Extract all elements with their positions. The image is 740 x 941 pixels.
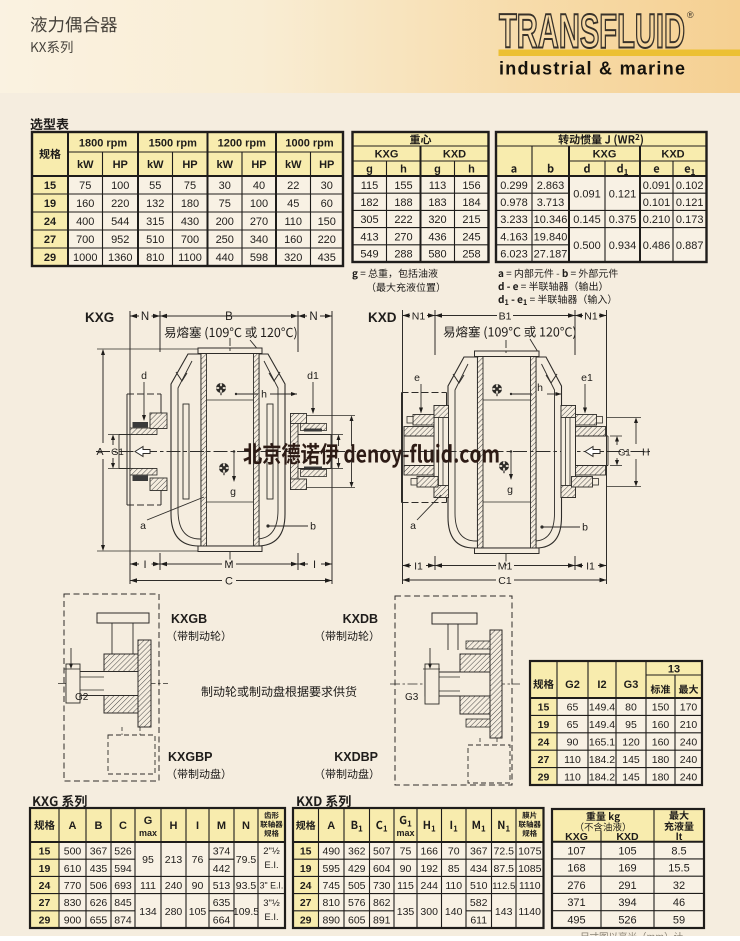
svg-text:H: H <box>642 447 650 459</box>
svg-text:kW: kW <box>77 159 94 171</box>
svg-text:188: 188 <box>394 197 412 209</box>
svg-text:100: 100 <box>111 180 129 192</box>
svg-text:0.102: 0.102 <box>676 180 704 192</box>
svg-text:0.121: 0.121 <box>676 197 704 209</box>
svg-text:394: 394 <box>618 897 636 909</box>
svg-text:19: 19 <box>538 719 550 731</box>
svg-text:15: 15 <box>300 846 312 858</box>
svg-text:90: 90 <box>192 880 204 892</box>
svg-text:65: 65 <box>567 702 579 714</box>
svg-text:434: 434 <box>470 863 488 875</box>
svg-text:h: h <box>537 382 543 394</box>
svg-text:max: max <box>396 828 414 838</box>
svg-text:745: 745 <box>322 880 340 892</box>
svg-text:1100: 1100 <box>178 252 202 264</box>
svg-text:a: a <box>410 520 416 532</box>
svg-text:N: N <box>309 311 317 323</box>
svg-text:113: 113 <box>429 180 447 192</box>
svg-text:160: 160 <box>76 198 94 210</box>
svg-text:276: 276 <box>567 880 585 892</box>
svg-text:h: h <box>261 389 267 401</box>
svg-text:145: 145 <box>622 771 640 783</box>
svg-text:h: h <box>468 164 475 176</box>
svg-text:24: 24 <box>39 880 51 892</box>
svg-text:693: 693 <box>114 880 132 892</box>
svg-text:810: 810 <box>322 897 340 909</box>
svg-text:952: 952 <box>111 234 129 246</box>
svg-text:G1: G1 <box>111 447 124 458</box>
svg-text:291: 291 <box>618 880 636 892</box>
svg-text:183: 183 <box>428 197 446 209</box>
svg-text:507: 507 <box>373 846 391 858</box>
svg-text:891: 891 <box>373 914 391 926</box>
svg-text:76: 76 <box>192 854 204 866</box>
svg-text:182: 182 <box>360 197 378 209</box>
svg-text:G1: G1 <box>618 448 631 459</box>
svg-text:I: I <box>143 559 146 571</box>
svg-text:240: 240 <box>680 737 698 749</box>
svg-text:g: g <box>507 484 513 496</box>
svg-text:810: 810 <box>146 252 164 264</box>
svg-text:1140: 1140 <box>518 906 541 918</box>
svg-text:KXD: KXD <box>443 149 466 161</box>
svg-text:30: 30 <box>219 180 231 192</box>
svg-text:d: d <box>141 370 147 382</box>
svg-text:e: e <box>414 372 420 384</box>
svg-text:g: g <box>366 164 373 176</box>
svg-text:M: M <box>217 820 226 832</box>
svg-text:60: 60 <box>321 198 333 210</box>
svg-text:90: 90 <box>400 863 412 875</box>
svg-text:2"½: 2"½ <box>263 846 280 857</box>
svg-text:75: 75 <box>400 846 412 858</box>
svg-text:30: 30 <box>321 180 333 192</box>
svg-text:149.4: 149.4 <box>589 702 615 714</box>
svg-text:I1: I1 <box>414 561 423 573</box>
svg-text:180: 180 <box>652 754 670 766</box>
svg-text:160: 160 <box>284 234 302 246</box>
svg-text:1800 rpm: 1800 rpm <box>79 138 128 150</box>
svg-text:240: 240 <box>165 880 183 892</box>
svg-text:80: 80 <box>625 702 637 714</box>
svg-text:430: 430 <box>181 216 199 228</box>
svg-text:d1: d1 <box>307 370 319 382</box>
svg-text:h: h <box>400 164 407 176</box>
svg-text:109.5: 109.5 <box>233 906 259 918</box>
svg-text:A: A <box>96 446 103 458</box>
svg-text:0.887: 0.887 <box>676 240 704 252</box>
svg-text:HP: HP <box>113 159 128 171</box>
svg-text:605: 605 <box>348 914 366 926</box>
svg-text:305: 305 <box>360 214 378 226</box>
svg-text:KXD: KXD <box>616 831 639 843</box>
svg-text:700: 700 <box>181 234 199 246</box>
svg-text:110: 110 <box>564 771 581 783</box>
svg-text:I: I <box>313 559 316 571</box>
svg-text:1085: 1085 <box>518 863 542 875</box>
svg-text:22: 22 <box>287 180 299 192</box>
svg-text:M: M <box>224 559 233 571</box>
svg-text:B: B <box>95 820 103 832</box>
svg-text:15: 15 <box>44 180 56 192</box>
svg-text:700: 700 <box>76 234 94 246</box>
svg-text:1360: 1360 <box>108 252 132 264</box>
svg-text:250: 250 <box>216 234 234 246</box>
svg-text:C1: C1 <box>498 575 512 587</box>
svg-text:862: 862 <box>373 897 391 909</box>
svg-text:105: 105 <box>618 845 636 857</box>
svg-text:KXG: KXG <box>565 831 588 843</box>
svg-text:0.210: 0.210 <box>643 214 671 226</box>
svg-text:582: 582 <box>470 897 488 909</box>
svg-text:580: 580 <box>428 249 446 261</box>
svg-text:I: I <box>196 820 199 832</box>
svg-text:215: 215 <box>462 214 480 226</box>
svg-text:95: 95 <box>625 719 637 731</box>
svg-text:184.2: 184.2 <box>589 754 615 766</box>
svg-text:0.375: 0.375 <box>609 214 637 226</box>
svg-text:315: 315 <box>146 216 164 228</box>
svg-text:93.5: 93.5 <box>236 880 257 892</box>
svg-text:165.1: 165.1 <box>589 737 615 749</box>
svg-text:180: 180 <box>181 198 199 210</box>
svg-text:29: 29 <box>39 914 51 926</box>
svg-text:10.346: 10.346 <box>534 214 568 226</box>
svg-text:15.5: 15.5 <box>668 863 689 875</box>
svg-text:0.101: 0.101 <box>643 197 671 209</box>
svg-text:610: 610 <box>64 863 82 875</box>
svg-text:168: 168 <box>567 863 585 875</box>
svg-text:75: 75 <box>184 180 196 192</box>
svg-text:100: 100 <box>250 198 268 210</box>
svg-text:150: 150 <box>318 216 336 228</box>
svg-text:160: 160 <box>652 719 670 731</box>
svg-text:435: 435 <box>318 252 336 264</box>
svg-text:1500 rpm: 1500 rpm <box>149 138 198 150</box>
svg-text:374: 374 <box>213 846 231 858</box>
svg-text:KXDB: KXDB <box>343 612 378 626</box>
svg-text:N: N <box>141 311 149 323</box>
svg-text:598: 598 <box>250 252 268 264</box>
svg-text:32: 32 <box>673 880 685 892</box>
svg-text:180: 180 <box>652 771 670 783</box>
svg-text:135: 135 <box>397 906 415 918</box>
svg-text:industrial & marine: industrial & marine <box>499 59 685 79</box>
svg-text:59: 59 <box>673 914 685 926</box>
svg-text:400: 400 <box>76 216 94 228</box>
svg-text:b: b <box>582 522 588 534</box>
svg-text:kW: kW <box>285 159 302 171</box>
svg-text:C: C <box>119 820 127 832</box>
svg-text:169: 169 <box>618 863 636 875</box>
svg-text:65: 65 <box>567 719 579 731</box>
svg-text:240: 240 <box>680 754 698 766</box>
svg-text:0.486: 0.486 <box>643 240 671 252</box>
svg-text:184.2: 184.2 <box>589 771 615 783</box>
svg-text:HP: HP <box>251 159 266 171</box>
svg-text:90: 90 <box>567 737 579 749</box>
svg-text:595: 595 <box>322 863 340 875</box>
svg-text:75: 75 <box>219 198 231 210</box>
svg-text:222: 222 <box>394 214 412 226</box>
svg-text:510: 510 <box>470 880 488 892</box>
svg-text:900: 900 <box>64 914 82 926</box>
svg-text:max: max <box>139 828 157 838</box>
svg-text:KXDBP: KXDBP <box>334 750 378 764</box>
svg-text:132: 132 <box>146 198 164 210</box>
svg-text:M1: M1 <box>498 561 513 573</box>
svg-text:B: B <box>225 311 233 323</box>
svg-text:KXG: KXG <box>375 149 399 161</box>
svg-text:270: 270 <box>394 231 412 243</box>
svg-text:HP: HP <box>319 159 334 171</box>
svg-text:0.299: 0.299 <box>500 180 528 192</box>
svg-text:®: ® <box>687 10 694 20</box>
svg-text:79.5: 79.5 <box>236 854 257 866</box>
svg-text:513: 513 <box>213 880 231 892</box>
svg-text:240: 240 <box>680 771 698 783</box>
svg-text:200: 200 <box>216 216 234 228</box>
svg-text:371: 371 <box>567 897 585 909</box>
svg-text:19: 19 <box>300 863 312 875</box>
svg-text:29: 29 <box>44 252 56 264</box>
svg-text:G2: G2 <box>75 692 89 703</box>
svg-text:112.5: 112.5 <box>492 881 515 892</box>
svg-text:g: g <box>230 486 236 498</box>
svg-text:549: 549 <box>360 249 378 261</box>
svg-text:526: 526 <box>114 846 132 858</box>
svg-text:KXGB: KXGB <box>171 612 207 626</box>
svg-text:280: 280 <box>165 906 183 918</box>
svg-text:G3: G3 <box>405 692 419 703</box>
svg-text:8.5: 8.5 <box>671 845 686 857</box>
svg-text:664: 664 <box>213 914 231 926</box>
svg-text:a: a <box>140 520 146 532</box>
svg-text:270: 270 <box>250 216 268 228</box>
svg-text:0.978: 0.978 <box>500 197 528 209</box>
svg-text:I1: I1 <box>586 561 595 573</box>
svg-text:244: 244 <box>420 880 438 892</box>
svg-text:75: 75 <box>79 180 91 192</box>
svg-text:g: g <box>434 164 441 176</box>
svg-text:413: 413 <box>360 231 378 243</box>
svg-text:594: 594 <box>114 863 132 875</box>
svg-text:110: 110 <box>284 216 302 228</box>
svg-text:105: 105 <box>189 906 207 918</box>
svg-text:0.121: 0.121 <box>609 188 637 200</box>
svg-text:156: 156 <box>462 180 480 192</box>
svg-text:E.I.: E.I. <box>264 860 278 871</box>
svg-text:115: 115 <box>397 880 414 892</box>
svg-text:220: 220 <box>318 234 336 246</box>
svg-text:G2: G2 <box>565 679 580 691</box>
svg-text:170: 170 <box>680 702 698 714</box>
svg-text:300: 300 <box>420 906 438 918</box>
svg-text:29: 29 <box>300 914 312 926</box>
svg-text:367: 367 <box>90 846 108 858</box>
svg-text:635: 635 <box>213 897 231 909</box>
svg-text:I2: I2 <box>597 679 606 691</box>
svg-text:429: 429 <box>348 863 366 875</box>
svg-text:490: 490 <box>322 846 340 858</box>
svg-text:150: 150 <box>652 702 670 714</box>
svg-text:3.233: 3.233 <box>500 214 528 226</box>
svg-text:604: 604 <box>373 863 391 875</box>
svg-text:258: 258 <box>462 249 480 261</box>
svg-text:149.4: 149.4 <box>589 719 615 731</box>
svg-text:e1: e1 <box>581 372 593 384</box>
svg-text:29: 29 <box>538 771 550 783</box>
svg-text:95: 95 <box>142 854 154 866</box>
svg-text:E.I.: E.I. <box>264 912 278 923</box>
svg-text:19: 19 <box>39 863 51 875</box>
svg-text:24: 24 <box>44 216 57 228</box>
svg-text:320: 320 <box>428 214 446 226</box>
svg-text:B1: B1 <box>499 311 512 323</box>
svg-text:110: 110 <box>445 880 462 892</box>
svg-text:87.5: 87.5 <box>494 863 515 875</box>
svg-text:lt: lt <box>676 831 683 843</box>
svg-text:A: A <box>69 820 77 832</box>
svg-text:0.500: 0.500 <box>573 240 601 252</box>
svg-text:85: 85 <box>448 863 460 875</box>
svg-text:27: 27 <box>538 754 550 766</box>
svg-text:N1: N1 <box>412 311 426 323</box>
svg-text:1000: 1000 <box>73 252 97 264</box>
svg-text:1200 rpm: 1200 rpm <box>218 138 267 150</box>
svg-text:27: 27 <box>39 897 51 909</box>
svg-text:15: 15 <box>538 702 550 714</box>
svg-text:b: b <box>310 521 316 533</box>
svg-text:730: 730 <box>373 880 391 892</box>
svg-text:362: 362 <box>348 846 366 858</box>
svg-text:110: 110 <box>564 754 581 766</box>
svg-text:19.840: 19.840 <box>534 231 568 243</box>
svg-text:120: 120 <box>622 737 640 749</box>
svg-text:45: 45 <box>287 198 299 210</box>
svg-text:506: 506 <box>90 880 108 892</box>
svg-text:890: 890 <box>322 914 340 926</box>
svg-text:27: 27 <box>44 234 56 246</box>
svg-text:145: 145 <box>622 754 640 766</box>
svg-text:1000 rpm: 1000 rpm <box>285 138 334 150</box>
svg-text:N: N <box>242 820 250 832</box>
svg-text:288: 288 <box>394 249 412 261</box>
svg-text:N1: N1 <box>584 311 598 323</box>
svg-text:13: 13 <box>668 664 680 676</box>
svg-text:626: 626 <box>90 897 108 909</box>
svg-text:874: 874 <box>114 914 132 926</box>
svg-text:3"½: 3"½ <box>263 898 280 909</box>
svg-text:KXG: KXG <box>85 310 114 325</box>
svg-text:G3: G3 <box>624 679 639 691</box>
svg-text:2.863: 2.863 <box>537 180 565 192</box>
svg-text:111: 111 <box>140 880 156 892</box>
svg-text:KXD: KXD <box>661 149 684 161</box>
svg-text:367: 367 <box>470 846 488 858</box>
svg-text:46: 46 <box>673 897 685 909</box>
svg-text:0.091: 0.091 <box>643 180 671 192</box>
svg-text:55: 55 <box>149 180 161 192</box>
svg-text:440: 440 <box>216 252 234 264</box>
svg-text:72.5: 72.5 <box>494 846 515 858</box>
svg-text:A: A <box>327 820 335 832</box>
svg-text:845: 845 <box>114 897 132 909</box>
svg-text:24: 24 <box>300 880 312 892</box>
svg-text:KXD: KXD <box>368 310 397 325</box>
svg-text:510: 510 <box>146 234 164 246</box>
svg-text:435: 435 <box>90 863 108 875</box>
svg-text:0.934: 0.934 <box>609 240 637 252</box>
svg-text:143: 143 <box>495 906 513 918</box>
svg-text:15: 15 <box>39 846 51 858</box>
svg-text:495: 495 <box>567 914 585 926</box>
svg-text:500: 500 <box>64 846 82 858</box>
svg-text:kW: kW <box>147 159 164 171</box>
svg-text:27.187: 27.187 <box>534 249 568 261</box>
svg-text:526: 526 <box>618 914 636 926</box>
svg-text:505: 505 <box>348 880 366 892</box>
svg-text:155: 155 <box>394 180 412 192</box>
svg-text:210: 210 <box>680 719 698 731</box>
svg-text:611: 611 <box>470 914 487 926</box>
svg-text:3.713: 3.713 <box>537 197 565 209</box>
svg-text:320: 320 <box>284 252 302 264</box>
svg-text:G: G <box>144 815 153 827</box>
svg-text:115: 115 <box>361 180 379 192</box>
svg-text:166: 166 <box>420 846 438 858</box>
svg-text:1110: 1110 <box>519 880 541 892</box>
svg-text:220: 220 <box>111 198 129 210</box>
svg-text:245: 245 <box>462 231 480 243</box>
svg-text:107: 107 <box>567 845 585 857</box>
svg-text:213: 213 <box>165 854 183 866</box>
svg-text:184: 184 <box>462 197 480 209</box>
svg-text:0.145: 0.145 <box>573 214 601 226</box>
svg-text:160: 160 <box>652 737 670 749</box>
svg-text:H: H <box>170 820 178 832</box>
svg-text:0.173: 0.173 <box>676 214 704 226</box>
svg-text:1075: 1075 <box>518 846 542 858</box>
svg-text:544: 544 <box>111 216 129 228</box>
svg-text:KXGBP: KXGBP <box>168 750 212 764</box>
svg-text:6.023: 6.023 <box>500 249 528 261</box>
svg-text:0.091: 0.091 <box>573 188 601 200</box>
svg-text:3" E.I.: 3" E.I. <box>260 881 284 891</box>
svg-text:442: 442 <box>213 863 231 875</box>
svg-text:C: C <box>225 576 233 588</box>
svg-text:kW: kW <box>217 159 234 171</box>
svg-text:4.163: 4.163 <box>500 231 528 243</box>
svg-text:24: 24 <box>538 737 550 749</box>
svg-text:655: 655 <box>90 914 108 926</box>
svg-text:192: 192 <box>420 863 438 875</box>
svg-text:830: 830 <box>64 897 82 909</box>
svg-text:70: 70 <box>448 846 460 858</box>
svg-text:340: 340 <box>250 234 268 246</box>
svg-text:KXG: KXG <box>593 149 617 161</box>
svg-text:436: 436 <box>428 231 446 243</box>
svg-text:40: 40 <box>253 180 265 192</box>
svg-text:HP: HP <box>182 159 197 171</box>
svg-text:576: 576 <box>348 897 366 909</box>
svg-text:27: 27 <box>300 897 312 909</box>
svg-text:770: 770 <box>64 880 82 892</box>
svg-text:140: 140 <box>445 906 463 918</box>
svg-text:19: 19 <box>44 198 56 210</box>
svg-text:134: 134 <box>139 906 157 918</box>
